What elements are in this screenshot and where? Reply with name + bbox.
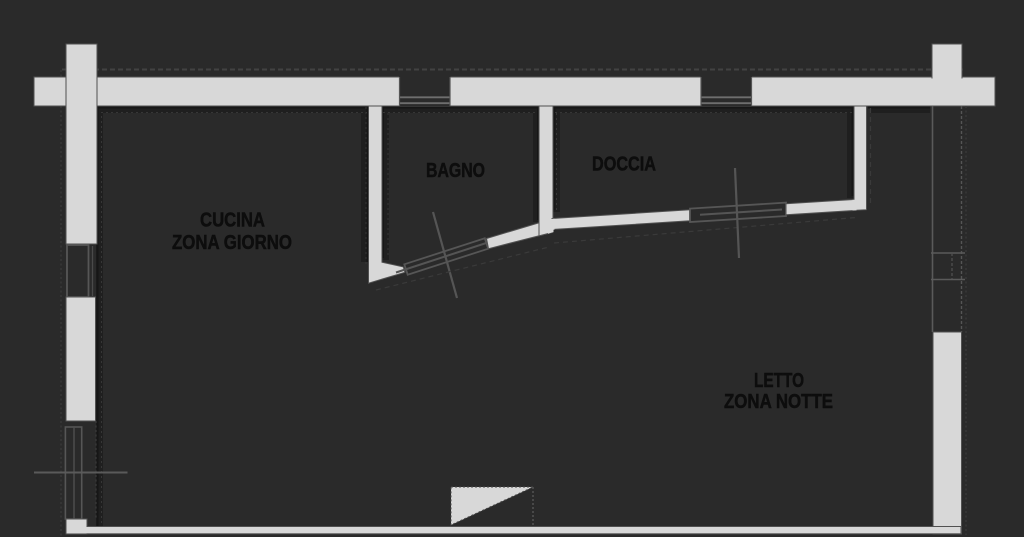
svg-text:CUCINA: CUCINA [200,210,265,232]
svg-text:LETTO: LETTO [754,370,804,392]
svg-text:ZONA NOTTE: ZONA NOTTE [724,391,833,413]
svg-text:BAGNO: BAGNO [426,160,485,182]
svg-text:DOCCIA: DOCCIA [592,154,656,176]
svg-text:ZONA GIORNO: ZONA GIORNO [172,232,292,254]
